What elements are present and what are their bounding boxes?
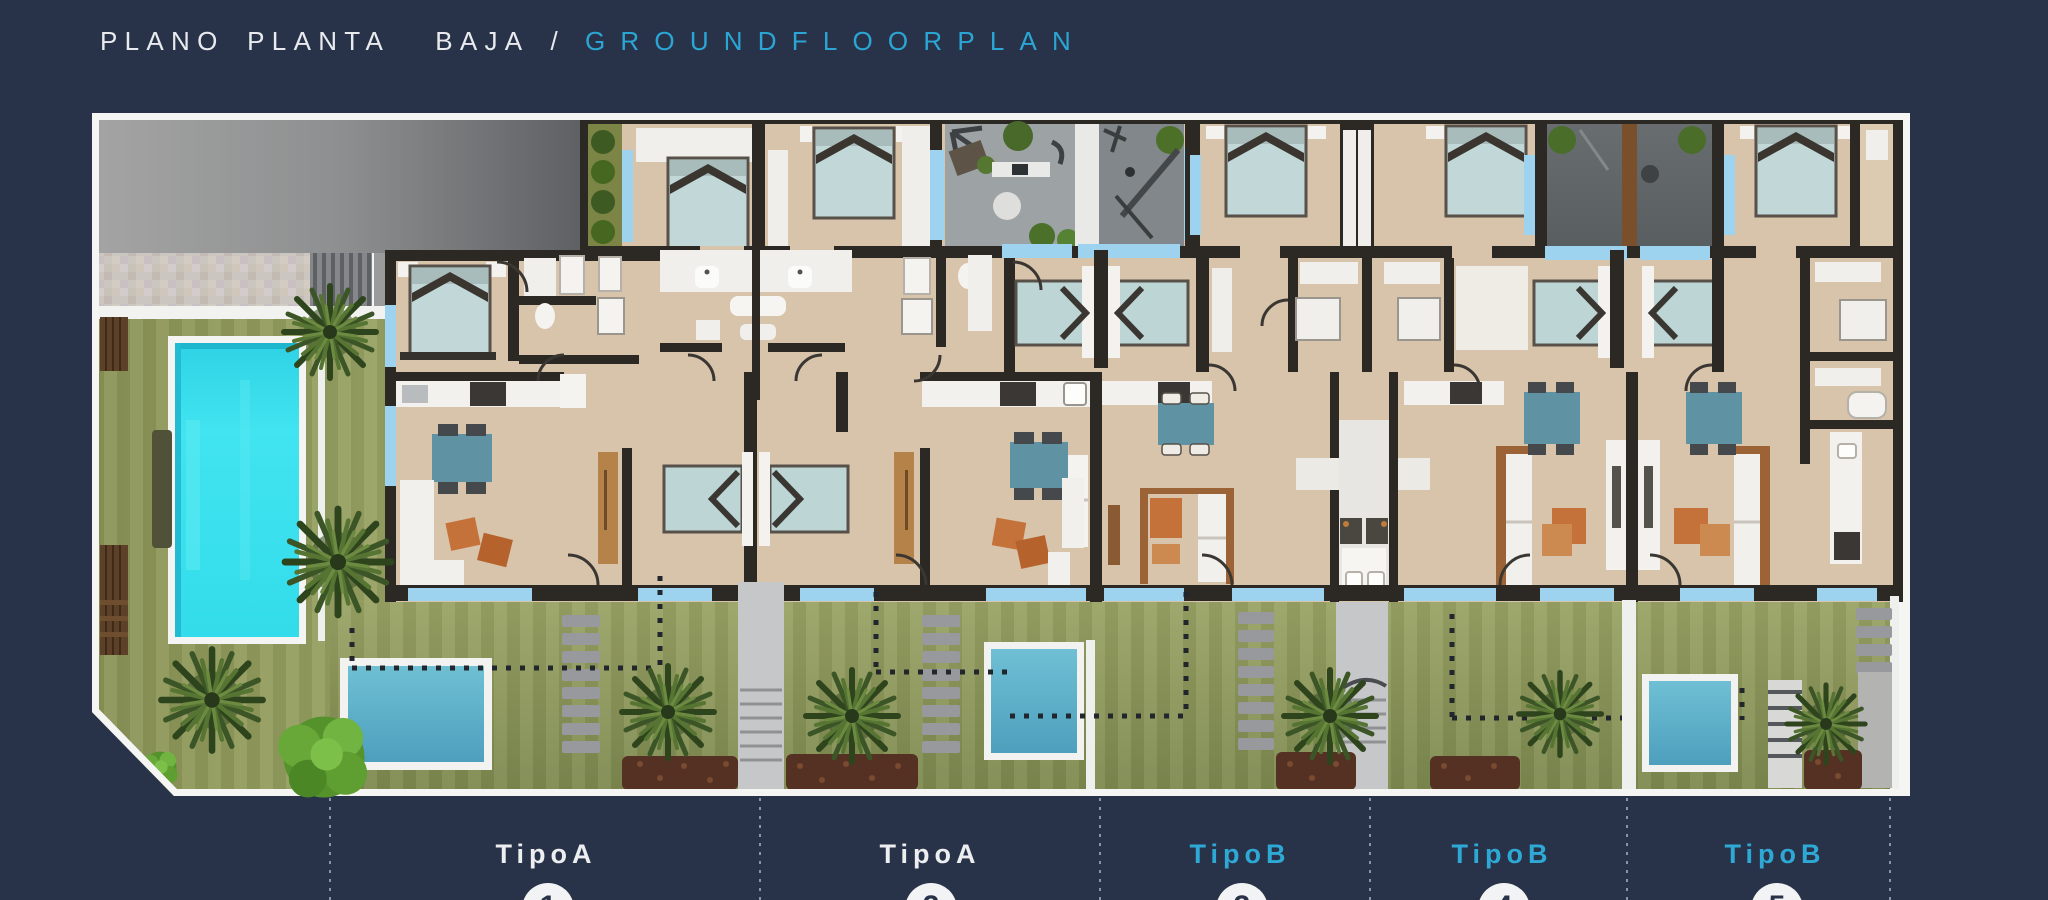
svg-text:GROUNDFLOORPLAN: GROUNDFLOORPLAN [585,26,1086,56]
svg-text:4: 4 [1496,890,1513,900]
svg-text:PLANO PLANTA BAJA /: PLANO PLANTA BAJA / [100,26,565,56]
svg-text:TipoB: TipoB [1725,839,1826,869]
svg-text:3: 3 [1234,890,1251,900]
svg-text:1: 1 [540,890,557,900]
svg-text:5: 5 [1769,890,1786,900]
svg-text:TipoB: TipoB [1452,839,1553,869]
svg-text:TipoB: TipoB [1190,839,1291,869]
svg-text:TipoA: TipoA [880,839,981,869]
svg-text:2: 2 [923,890,940,900]
svg-text:TipoA: TipoA [496,839,597,869]
